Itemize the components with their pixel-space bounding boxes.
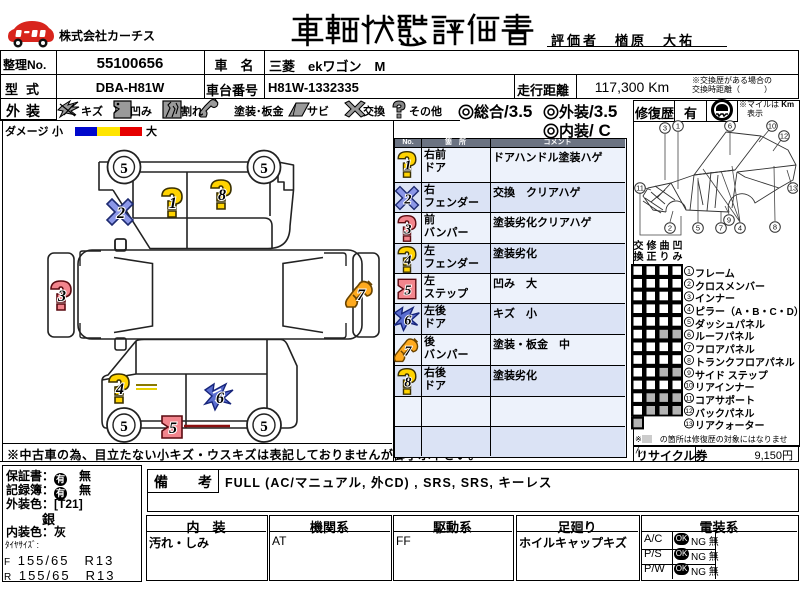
svg-text:13: 13	[789, 184, 797, 193]
svg-text:8: 8	[404, 374, 411, 390]
svg-text:3: 3	[663, 124, 667, 133]
svg-text:6: 6	[728, 122, 732, 131]
svg-text:2: 2	[403, 191, 411, 207]
svg-text:6: 6	[216, 390, 224, 407]
svg-text:6: 6	[687, 332, 691, 339]
svg-text:13: 13	[685, 421, 693, 428]
svg-text:5: 5	[260, 161, 268, 177]
svg-text:7: 7	[687, 345, 691, 352]
svg-text:5: 5	[687, 319, 691, 326]
svg-text:8: 8	[773, 223, 777, 232]
svg-text:11: 11	[685, 395, 692, 402]
svg-text:9: 9	[727, 216, 731, 225]
svg-text:1: 1	[404, 157, 411, 173]
svg-text:3: 3	[687, 294, 691, 301]
svg-text:8: 8	[218, 187, 226, 204]
svg-text:4: 4	[403, 252, 411, 268]
svg-text:7: 7	[357, 287, 366, 304]
svg-text:6: 6	[404, 312, 412, 328]
svg-text:5: 5	[120, 419, 128, 435]
svg-text:4: 4	[115, 381, 124, 398]
svg-text:10: 10	[768, 122, 776, 131]
svg-text:1: 1	[687, 268, 691, 275]
svg-text:1: 1	[169, 195, 177, 212]
svg-text:10: 10	[685, 383, 693, 390]
svg-text:4: 4	[687, 307, 691, 314]
svg-text:8: 8	[687, 357, 691, 364]
svg-text:5: 5	[696, 224, 700, 233]
svg-text:11: 11	[636, 184, 644, 193]
svg-text:2: 2	[668, 224, 672, 233]
svg-text:3: 3	[57, 288, 66, 305]
svg-text:5: 5	[169, 420, 177, 437]
svg-text:12: 12	[685, 408, 693, 415]
svg-text:9: 9	[687, 370, 691, 377]
svg-text:2: 2	[687, 281, 691, 288]
svg-text:5: 5	[404, 282, 411, 298]
svg-text:2: 2	[116, 205, 125, 222]
svg-text:1: 1	[676, 122, 680, 131]
svg-text:7: 7	[404, 343, 412, 359]
svg-text:12: 12	[780, 132, 788, 141]
svg-text:5: 5	[120, 161, 128, 177]
svg-text:3: 3	[403, 221, 411, 237]
svg-text:5: 5	[260, 419, 268, 435]
svg-text:7: 7	[719, 224, 723, 233]
svg-text:4: 4	[738, 224, 742, 233]
